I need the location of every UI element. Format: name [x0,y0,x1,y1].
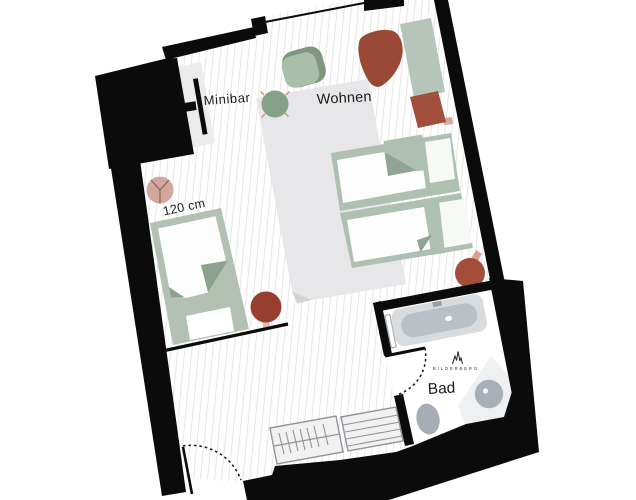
svg-text:BILDERBERG: BILDERBERG [433,366,479,371]
svg-text:Wohnen: Wohnen [316,89,372,108]
svg-text:Bad: Bad [427,380,455,398]
